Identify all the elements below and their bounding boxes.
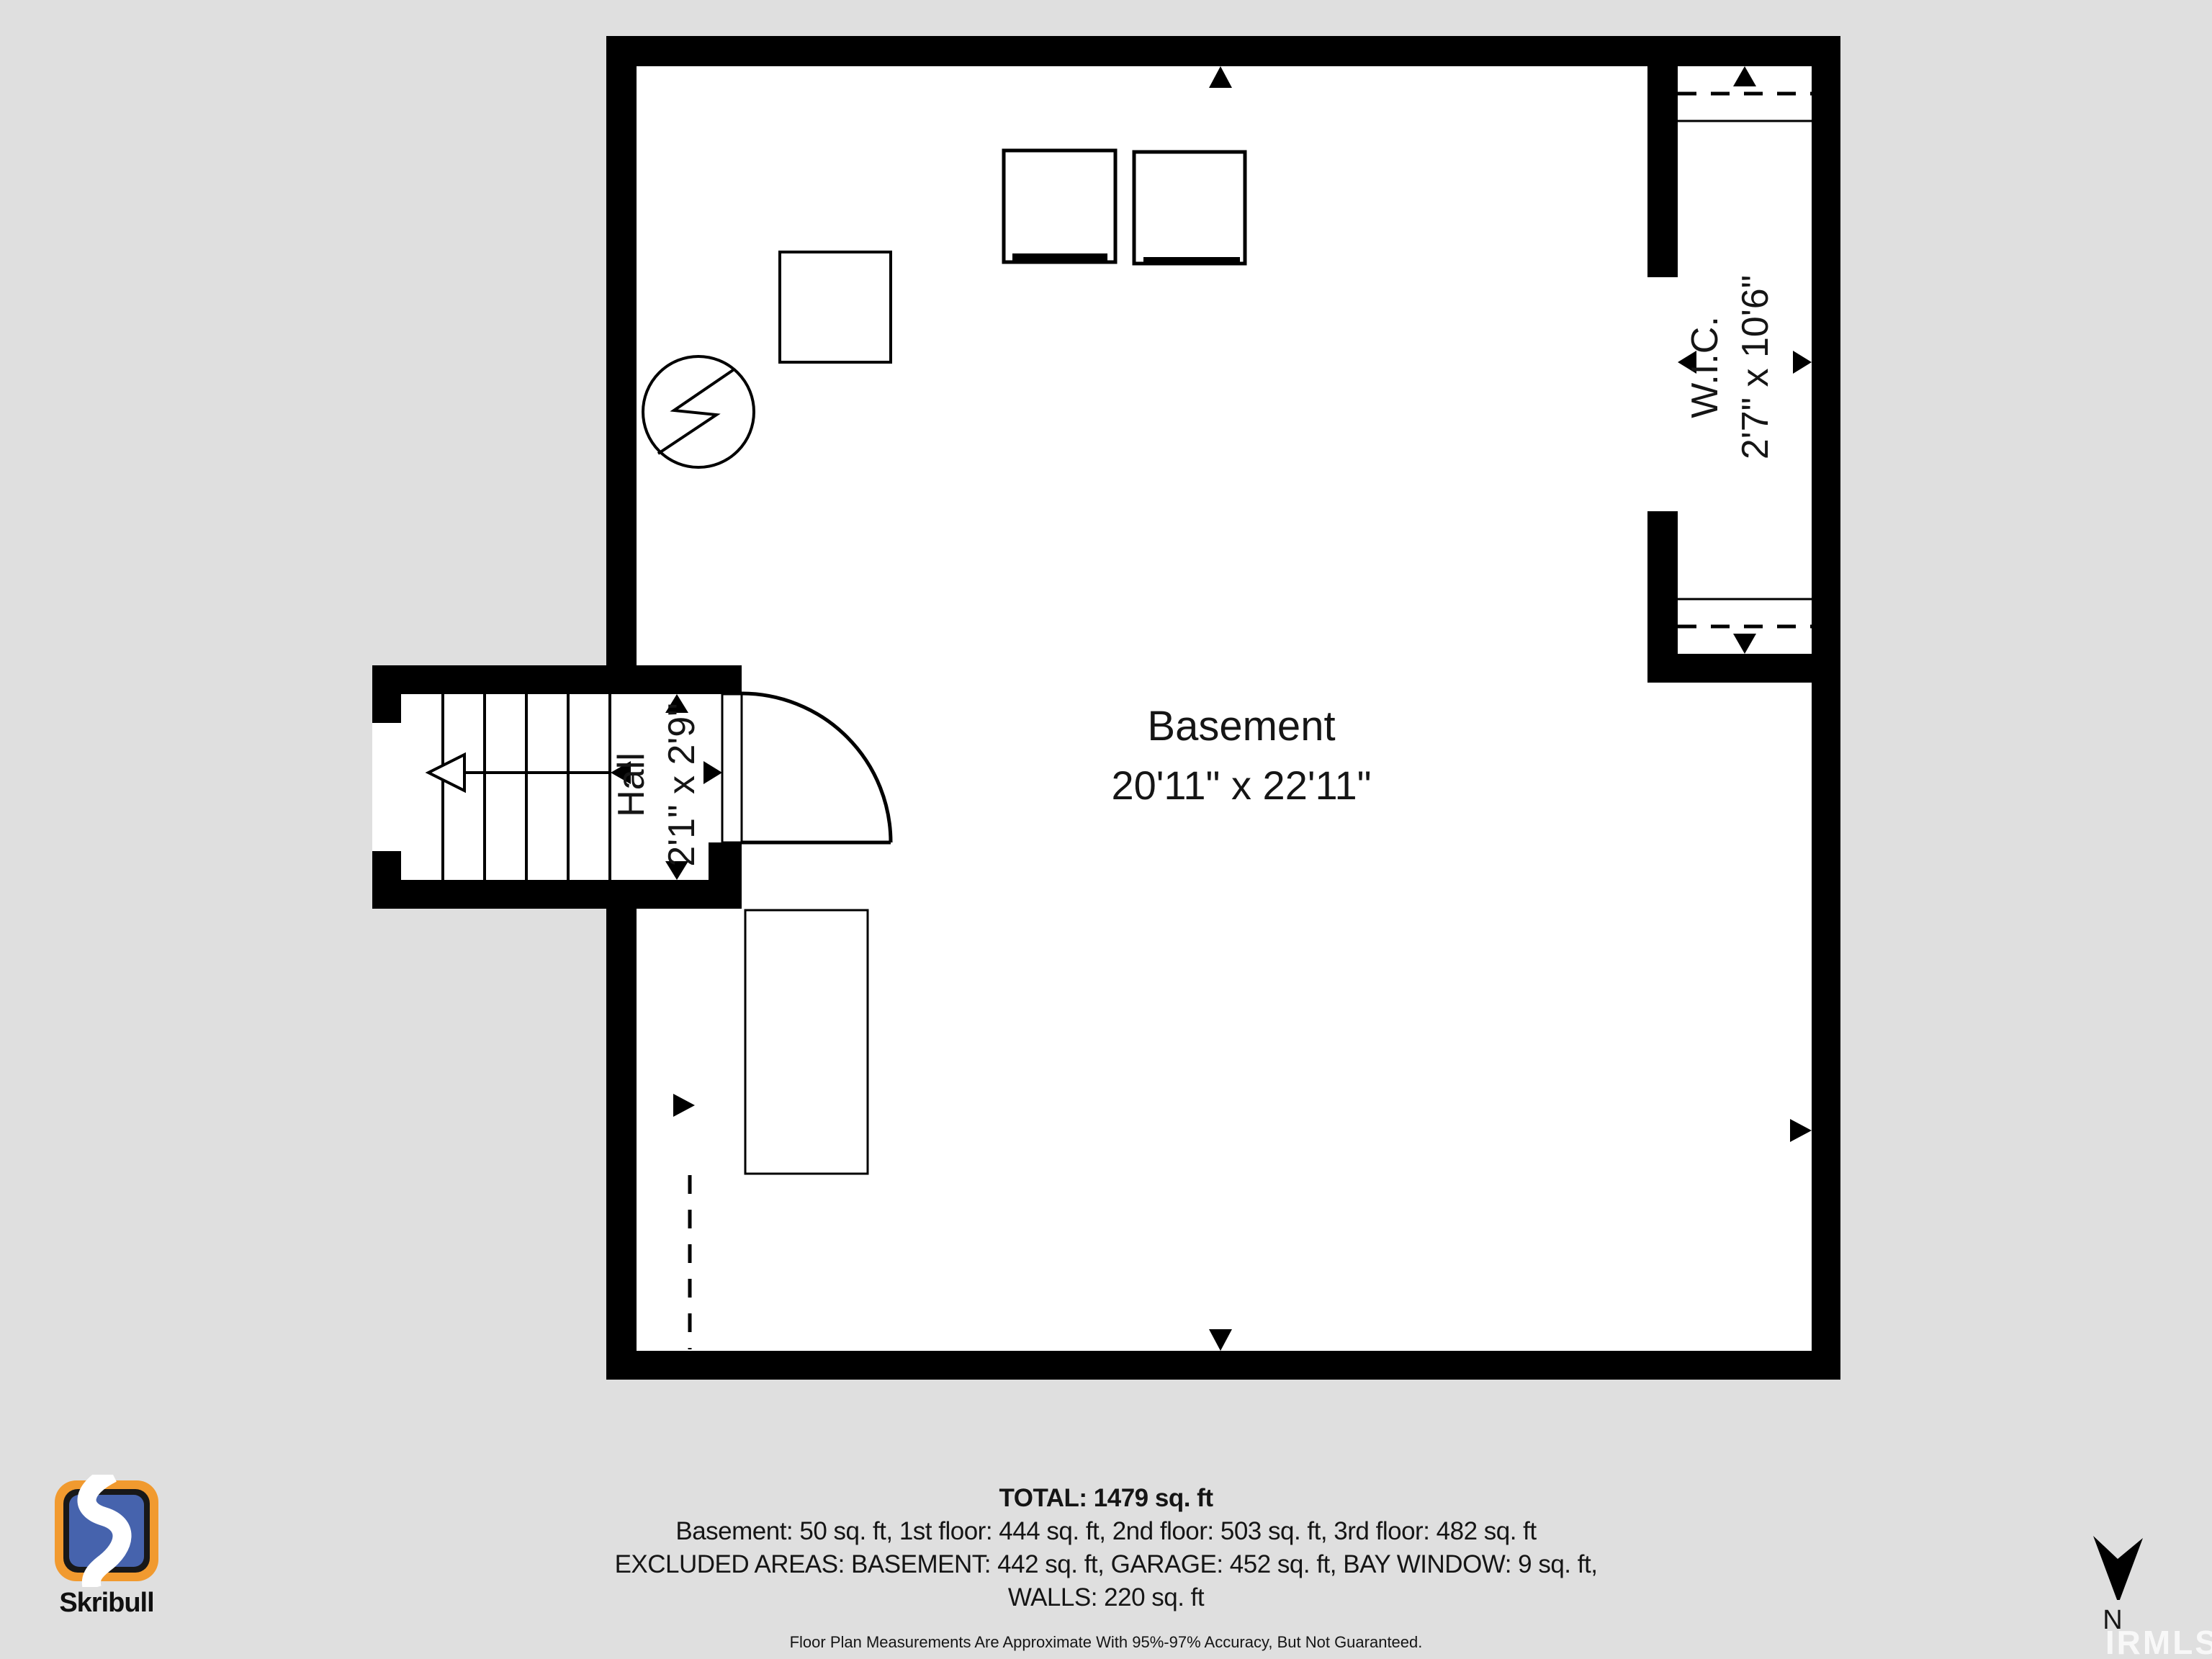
basement-label: Basement (1147, 703, 1335, 750)
irmls-watermark: IRMLS (2105, 1623, 2212, 1659)
wic-label: W.I.C. (1684, 316, 1726, 418)
north-arrow-icon (2083, 1528, 2155, 1600)
utility-box (780, 252, 891, 362)
walls-area-text: WALLS: 220 sq. ft (0, 1581, 2212, 1614)
excluded-areas-text: EXCLUDED AREAS: BASEMENT: 442 sq. ft, GA… (0, 1548, 2212, 1581)
hall-dims: 2'1" x 2'9" (661, 703, 703, 866)
skribull-logo-icon (49, 1475, 164, 1587)
wic-dims: 2'7" x 10'6" (1735, 275, 1776, 459)
floor-plan-page: Basement 20'11" x 22'11" W.I.C. 2'7" x 1… (0, 0, 2212, 1659)
disclaimer-text: Floor Plan Measurements Are Approximate … (0, 1626, 2212, 1659)
skribull-logo: Skribull (49, 1475, 164, 1619)
skribull-logo-text: Skribull (49, 1588, 164, 1619)
hall-label: Hall (611, 752, 652, 817)
basement-dims: 20'11" x 22'11" (1111, 763, 1371, 808)
floor-areas-text: Basement: 50 sq. ft, 1st floor: 444 sq. … (0, 1515, 2212, 1548)
area-summary: TOTAL: 1479 sq. ft Basement: 50 sq. ft, … (0, 1482, 2212, 1659)
total-area-text: TOTAL: 1479 sq. ft (0, 1482, 2212, 1515)
floor-plan-drawing: Basement 20'11" x 22'11" W.I.C. 2'7" x 1… (0, 0, 2212, 1659)
north-compass: N (2083, 1528, 2155, 1636)
washer (1004, 150, 1115, 262)
dryer (1134, 152, 1245, 264)
storage-box (745, 910, 868, 1174)
